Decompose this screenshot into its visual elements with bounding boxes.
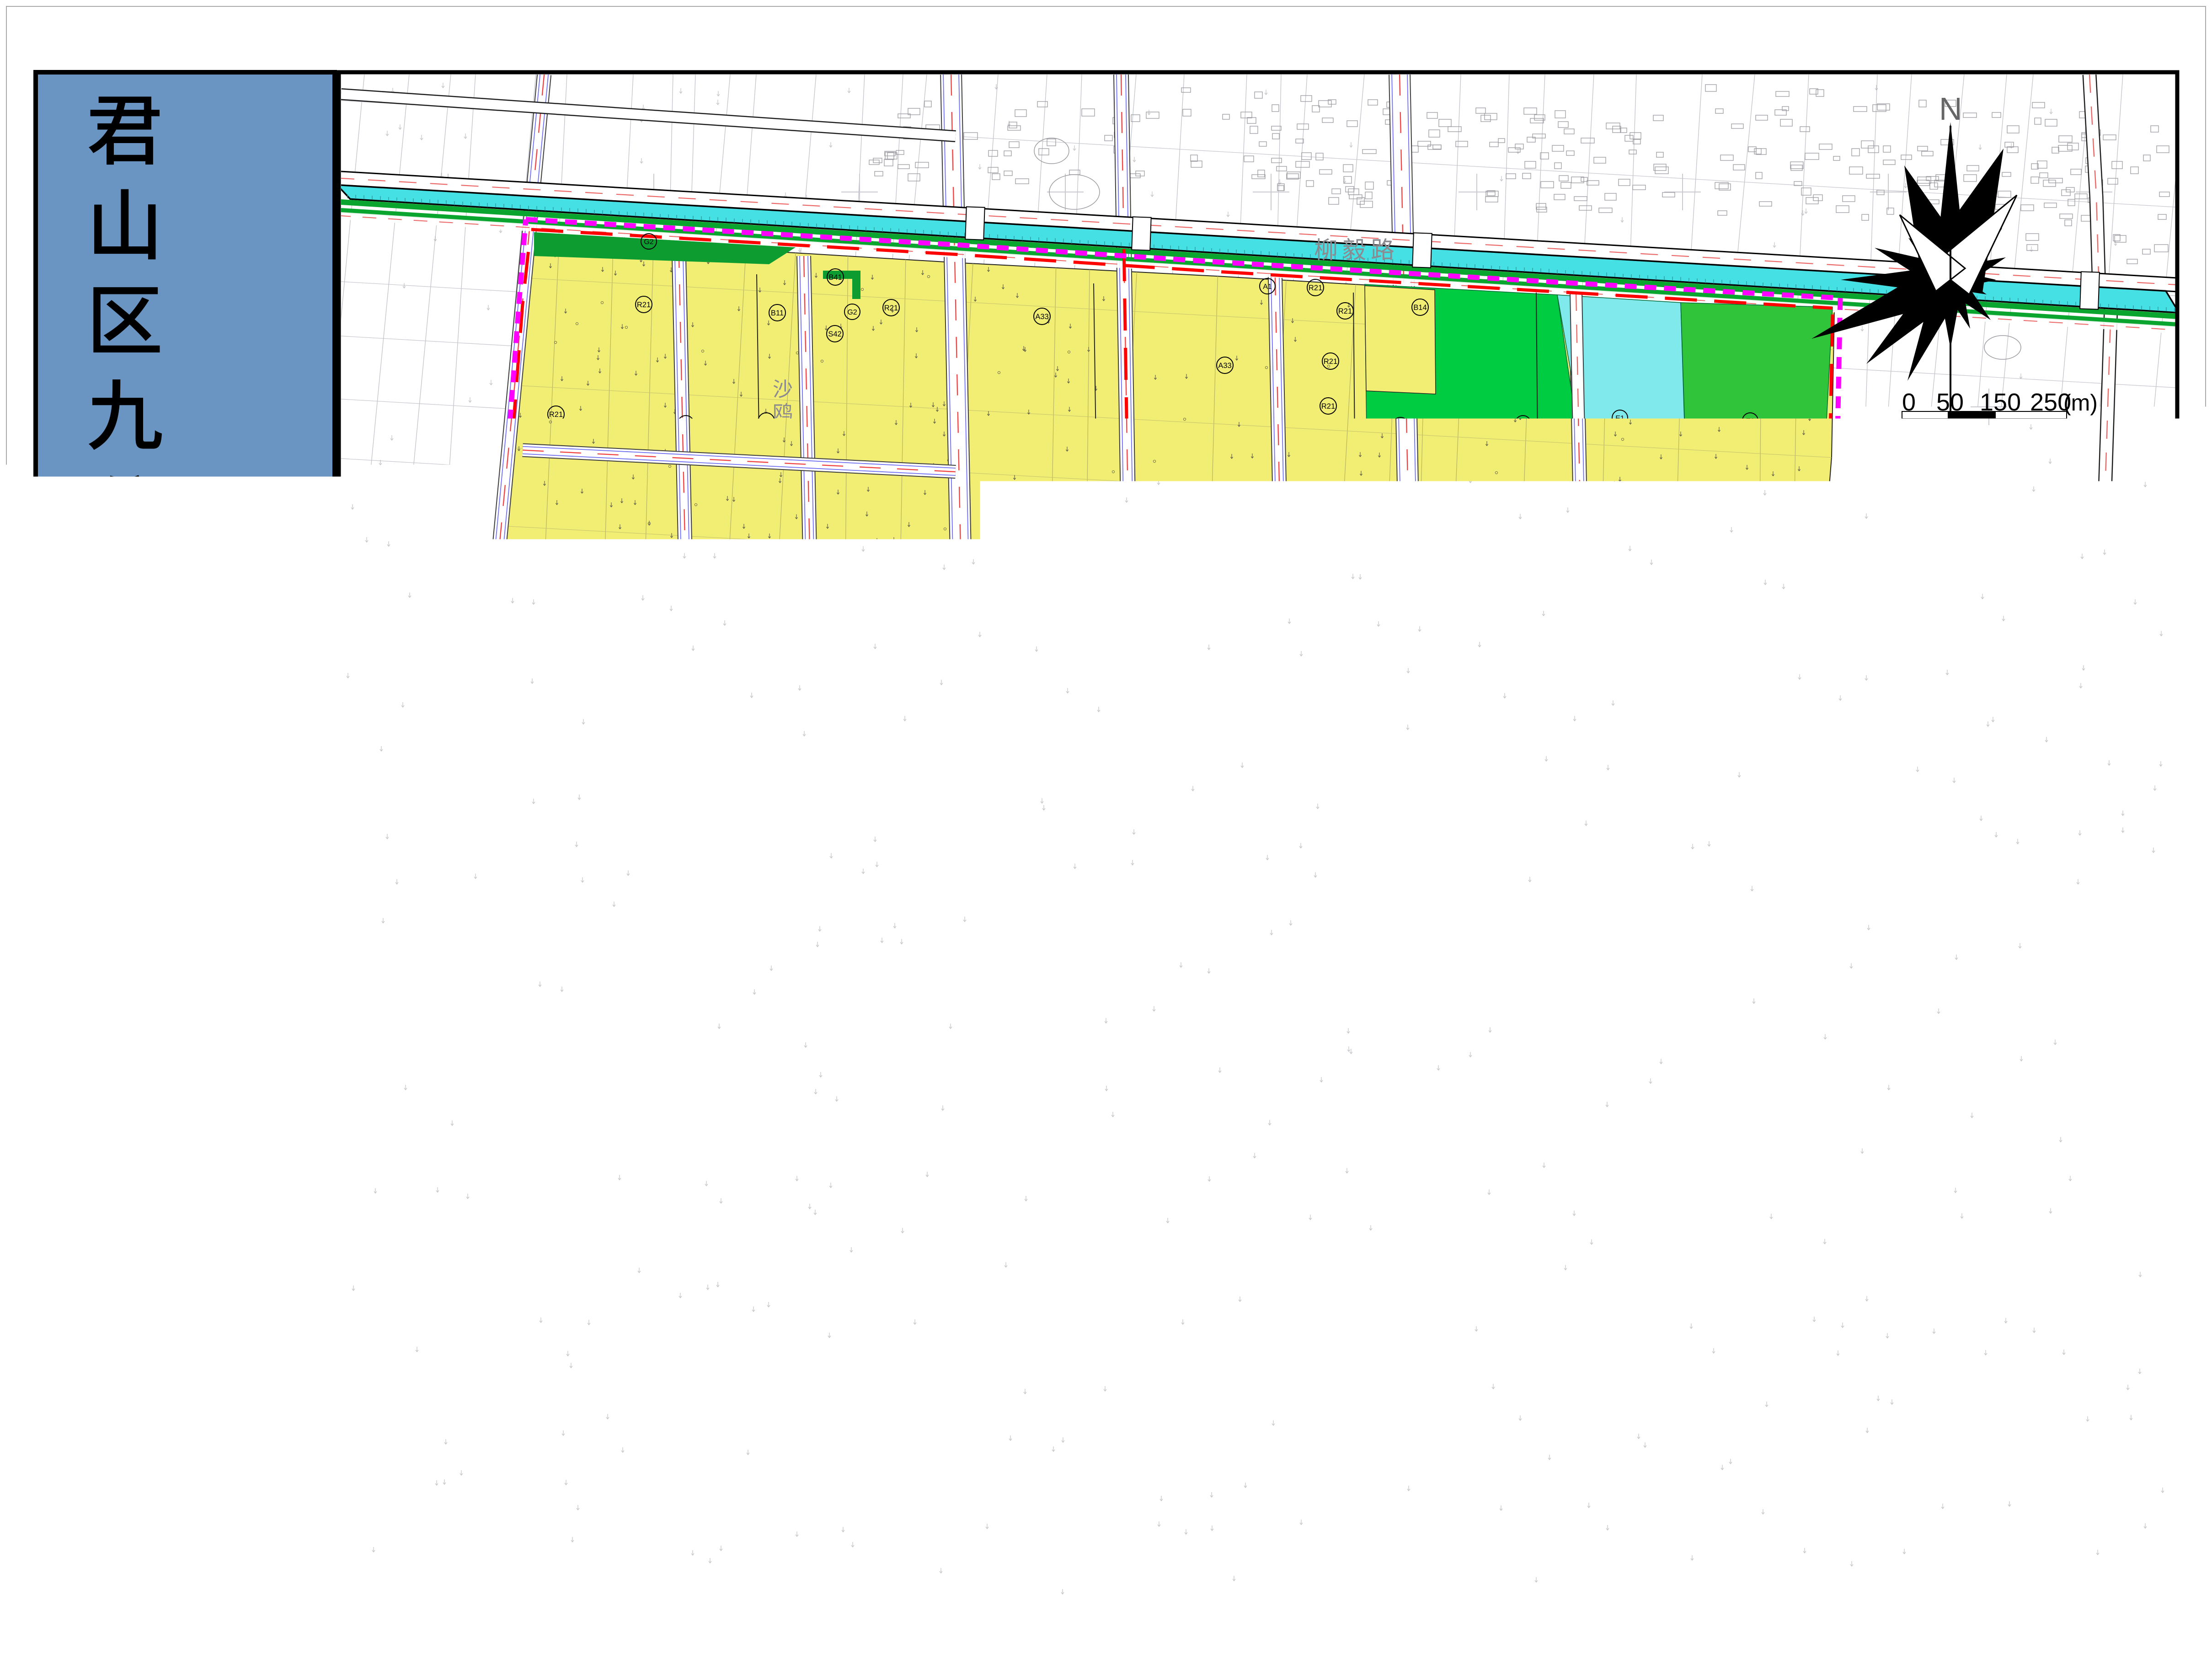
svg-text:1: 1 xyxy=(1074,537,1082,552)
svg-text:U31: U31 xyxy=(954,569,967,577)
svg-text:B11: B11 xyxy=(1107,573,1120,581)
svg-text:R21: R21 xyxy=(1516,961,1529,969)
svg-text:U13: U13 xyxy=(676,819,689,827)
svg-text:S42: S42 xyxy=(1545,1229,1558,1237)
svg-text:R21: R21 xyxy=(1021,430,1034,438)
svg-text:B1: B1 xyxy=(1253,907,1262,914)
svg-text:G2: G2 xyxy=(1707,939,1717,946)
svg-text:R21: R21 xyxy=(1356,1034,1369,1042)
svg-text:G1: G1 xyxy=(488,993,497,1001)
svg-text:B14: B14 xyxy=(1413,304,1427,312)
svg-text:R21: R21 xyxy=(1438,1135,1452,1143)
svg-text:B12: B12 xyxy=(595,815,608,823)
svg-text:B11: B11 xyxy=(1054,655,1067,663)
svg-text:R21: R21 xyxy=(679,420,693,428)
svg-text:B11: B11 xyxy=(760,417,773,426)
svg-text:R21: R21 xyxy=(1040,1244,1054,1253)
svg-text:B11: B11 xyxy=(771,309,784,317)
svg-text:R21: R21 xyxy=(1321,402,1335,411)
svg-text:B41: B41 xyxy=(650,779,663,787)
svg-text:B21: B21 xyxy=(641,683,654,692)
svg-text:R21: R21 xyxy=(1125,1139,1138,1147)
svg-text:G2: G2 xyxy=(539,1350,549,1358)
svg-text:A33: A33 xyxy=(1035,313,1048,321)
svg-text:G2: G2 xyxy=(2050,1428,2060,1435)
svg-text:R21: R21 xyxy=(727,1043,741,1051)
svg-text:E2: E2 xyxy=(1769,655,1779,663)
svg-text:R21: R21 xyxy=(1206,1204,1220,1212)
svg-text:A33: A33 xyxy=(474,1109,487,1117)
svg-text:R21: R21 xyxy=(668,512,682,521)
svg-text:G3: G3 xyxy=(1480,547,1490,555)
svg-text:S42: S42 xyxy=(1503,546,1516,555)
svg-text:G1: G1 xyxy=(1518,420,1528,428)
svg-text:U22: U22 xyxy=(840,1222,854,1230)
svg-text:R21: R21 xyxy=(556,1258,569,1266)
svg-text:R21: R21 xyxy=(1214,713,1228,721)
svg-text:S42: S42 xyxy=(802,1249,816,1257)
svg-text:R21: R21 xyxy=(1004,1048,1017,1056)
svg-text:B12: B12 xyxy=(550,914,563,922)
svg-text:R21: R21 xyxy=(1017,1304,1031,1312)
svg-text:N02-2: N02-2 xyxy=(1314,570,1372,593)
svg-text:R21: R21 xyxy=(1694,1187,1708,1195)
svg-text:A1: A1 xyxy=(940,651,949,658)
svg-text:R21: R21 xyxy=(990,970,1004,978)
svg-text:N02-4: N02-4 xyxy=(1400,1104,1457,1127)
svg-text:G1: G1 xyxy=(1729,1372,1738,1380)
svg-text:U21: U21 xyxy=(1900,1435,1914,1444)
svg-text:G2: G2 xyxy=(2116,819,2126,827)
svg-text:G1: G1 xyxy=(516,785,525,793)
svg-text:S42: S42 xyxy=(828,330,841,338)
svg-text:B1: B1 xyxy=(1321,966,1330,974)
svg-text:R21: R21 xyxy=(785,962,799,970)
svg-text:E2: E2 xyxy=(1746,417,1755,425)
svg-text:R21: R21 xyxy=(848,1139,862,1147)
svg-text:U12: U12 xyxy=(1540,1336,1554,1344)
svg-text:B21: B21 xyxy=(523,672,536,681)
svg-text:A1: A1 xyxy=(1263,283,1272,291)
svg-text:2886.77: 2886.77 xyxy=(1093,615,1142,630)
svg-text:R21: R21 xyxy=(1849,1221,1862,1229)
svg-text:A1: A1 xyxy=(994,651,1004,658)
svg-text:S42: S42 xyxy=(502,876,515,884)
svg-text:R21: R21 xyxy=(1324,357,1337,366)
svg-text:G2: G2 xyxy=(519,716,529,724)
svg-text:N02-1: N02-1 xyxy=(754,520,811,544)
svg-text:B11: B11 xyxy=(1528,551,1541,560)
svg-text:R21: R21 xyxy=(851,430,865,438)
svg-text:1: 1 xyxy=(1100,537,1108,552)
svg-text:N02-1: N02-1 xyxy=(1959,1146,1988,1158)
svg-text:6: 6 xyxy=(1091,537,1099,552)
svg-text:S42: S42 xyxy=(509,812,522,821)
svg-text:G2: G2 xyxy=(871,1358,880,1366)
svg-text:N: N xyxy=(1939,91,1962,127)
svg-text:R21: R21 xyxy=(1447,897,1461,905)
svg-text:A1: A1 xyxy=(1111,1313,1120,1321)
svg-text:B11: B11 xyxy=(1098,1254,1111,1263)
svg-text:G2: G2 xyxy=(644,238,653,246)
svg-text:1: 1 xyxy=(1083,537,1090,552)
svg-text:R21: R21 xyxy=(1544,685,1557,693)
svg-text:B41: B41 xyxy=(828,273,842,282)
svg-text:G2: G2 xyxy=(1188,761,1198,768)
svg-text:A33: A33 xyxy=(1171,495,1185,503)
svg-text:G2: G2 xyxy=(953,750,962,758)
svg-text:B11: B11 xyxy=(1388,842,1401,850)
svg-text:G3: G3 xyxy=(1437,541,1447,549)
svg-text:R21: R21 xyxy=(1683,1118,1697,1126)
svg-text:B21: B21 xyxy=(953,906,967,914)
svg-text:R21: R21 xyxy=(872,571,886,580)
svg-text:R21: R21 xyxy=(533,590,546,598)
svg-text:8711.71: 8711.71 xyxy=(1280,670,1329,685)
svg-text:A1: A1 xyxy=(1340,665,1349,673)
svg-text:A33: A33 xyxy=(1119,1189,1132,1197)
svg-text:B21: B21 xyxy=(701,915,715,923)
svg-text:(m): (m) xyxy=(2063,390,2098,416)
svg-text:A33: A33 xyxy=(1218,362,1231,370)
svg-text:R21: R21 xyxy=(1392,1231,1406,1239)
svg-text:R21: R21 xyxy=(707,651,721,659)
svg-text:E1: E1 xyxy=(1761,939,1770,946)
svg-text:R21: R21 xyxy=(812,838,825,846)
svg-text:B11: B11 xyxy=(1390,543,1403,551)
svg-text:R21: R21 xyxy=(1296,496,1309,504)
svg-text:R21: R21 xyxy=(611,1096,625,1104)
svg-text:R21: R21 xyxy=(1333,1308,1346,1317)
svg-text:E1: E1 xyxy=(1623,655,1632,663)
svg-text:E1: E1 xyxy=(1615,415,1624,422)
svg-text:G2: G2 xyxy=(701,728,711,736)
svg-text:U22: U22 xyxy=(1545,1265,1559,1274)
svg-text:R21: R21 xyxy=(1557,1034,1571,1042)
svg-text:R21: R21 xyxy=(549,411,563,419)
svg-text:B11: B11 xyxy=(1178,1039,1191,1047)
svg-text:N02-3: N02-3 xyxy=(698,1120,755,1143)
svg-text:G2: G2 xyxy=(1431,775,1440,783)
svg-text:B11: B11 xyxy=(1466,648,1479,656)
svg-text:R21: R21 xyxy=(1309,284,1322,292)
svg-text:G2: G2 xyxy=(847,309,857,316)
svg-text:R22: R22 xyxy=(1109,838,1122,846)
svg-text:G2: G2 xyxy=(1865,803,1875,811)
svg-text:G2: G2 xyxy=(650,796,659,804)
svg-text:A51: A51 xyxy=(1027,499,1040,507)
svg-text:R21: R21 xyxy=(550,513,563,522)
svg-text:R21: R21 xyxy=(637,301,651,309)
svg-text:A33: A33 xyxy=(1222,596,1235,604)
svg-text:R22: R22 xyxy=(986,1084,1000,1093)
svg-text:S41: S41 xyxy=(495,912,508,920)
svg-text:R21: R21 xyxy=(884,304,898,312)
svg-text:G2: G2 xyxy=(1668,790,1678,798)
svg-text:R21: R21 xyxy=(1338,307,1352,315)
svg-text:12127: 12127 xyxy=(1362,652,1400,667)
svg-text:G1: G1 xyxy=(1395,422,1405,430)
svg-text:R21: R21 xyxy=(1434,1226,1448,1234)
svg-text:R21: R21 xyxy=(1493,838,1507,846)
svg-text:H41: H41 xyxy=(1425,646,1439,655)
svg-text:G3: G3 xyxy=(1547,1187,1556,1195)
